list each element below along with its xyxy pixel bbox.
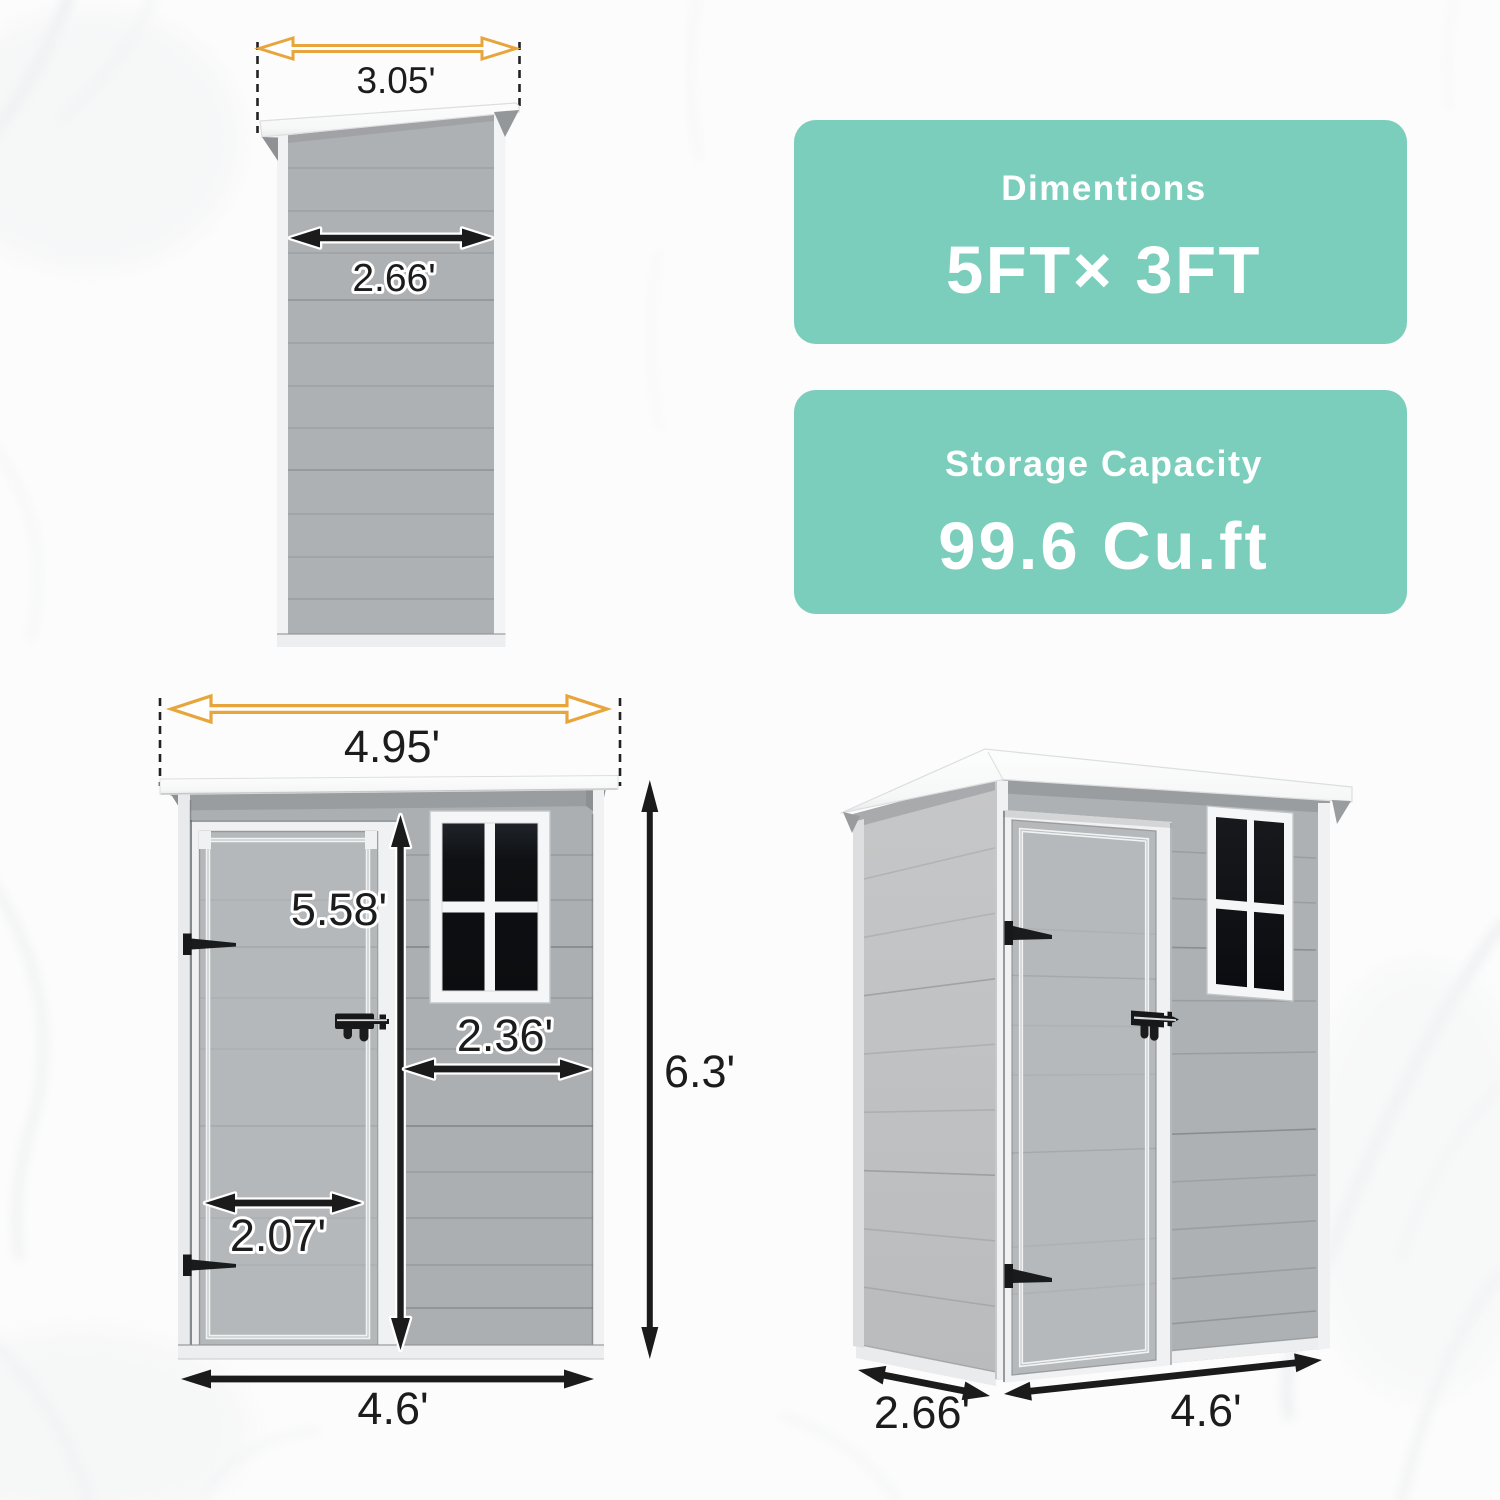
svg-text:4.95': 4.95' bbox=[344, 721, 440, 772]
svg-text:Storage Capacity: Storage Capacity bbox=[945, 443, 1263, 484]
svg-text:4.6': 4.6' bbox=[357, 1383, 428, 1434]
svg-text:2.66': 2.66' bbox=[874, 1387, 970, 1438]
svg-text:5.58': 5.58' bbox=[291, 884, 387, 935]
svg-text:5FT× 3FT: 5FT× 3FT bbox=[946, 233, 1262, 308]
svg-text:2.07': 2.07' bbox=[230, 1210, 326, 1261]
svg-text:Dimentions: Dimentions bbox=[1001, 169, 1207, 208]
svg-text:6.3': 6.3' bbox=[664, 1046, 735, 1097]
svg-text:4.6': 4.6' bbox=[1170, 1385, 1241, 1436]
svg-text:3.05': 3.05' bbox=[356, 60, 435, 101]
svg-text:2.36': 2.36' bbox=[457, 1010, 553, 1061]
svg-text:2.66': 2.66' bbox=[352, 257, 435, 300]
svg-text:99.6 Cu.ft: 99.6 Cu.ft bbox=[938, 509, 1270, 584]
